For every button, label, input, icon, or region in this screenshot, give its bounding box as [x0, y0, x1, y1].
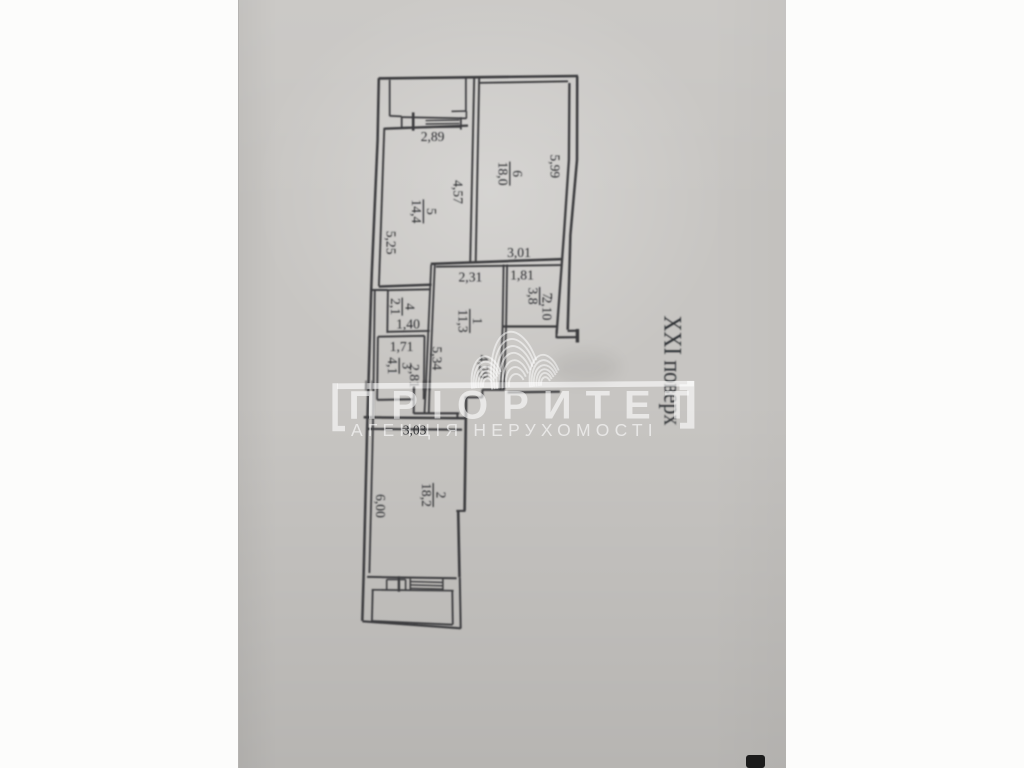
svg-text:2,31: 2,31	[459, 269, 483, 284]
svg-text:5: 5	[424, 208, 439, 215]
svg-text:1,40: 1,40	[396, 316, 420, 331]
svg-text:2,10: 2,10	[539, 297, 554, 321]
svg-text:1,71: 1,71	[390, 339, 414, 354]
svg-text:1: 1	[470, 318, 485, 325]
svg-text:6: 6	[510, 170, 525, 177]
svg-text:5,34: 5,34	[430, 346, 445, 370]
svg-text:7: 7	[540, 293, 555, 300]
svg-text:2: 2	[434, 492, 449, 499]
svg-text:11,3: 11,3	[456, 309, 471, 332]
svg-text:4: 4	[403, 303, 418, 310]
svg-text:3: 3	[400, 362, 415, 369]
svg-text:4,57: 4,57	[450, 180, 465, 204]
svg-text:5,99: 5,99	[548, 154, 563, 178]
svg-text:2,1: 2,1	[388, 298, 403, 315]
svg-text:18,2: 18,2	[419, 483, 434, 507]
svg-text:3,8: 3,8	[525, 288, 540, 305]
svg-text:1,81: 1,81	[510, 267, 534, 282]
svg-text:3,01: 3,01	[507, 245, 531, 260]
svg-text:2,89: 2,89	[421, 129, 445, 144]
svg-text:6,00: 6,00	[373, 494, 388, 518]
svg-text:14,4: 14,4	[409, 200, 424, 224]
svg-text:3,03: 3,03	[403, 422, 427, 437]
svg-text:5,25: 5,25	[383, 231, 398, 255]
svg-text:18,0: 18,0	[496, 162, 511, 186]
svg-text:4,1: 4,1	[385, 357, 400, 374]
svg-text:АГЕНЦІЯ НЕРУХОМОСТІ: АГЕНЦІЯ НЕРУХОМОСТІ	[351, 420, 658, 440]
